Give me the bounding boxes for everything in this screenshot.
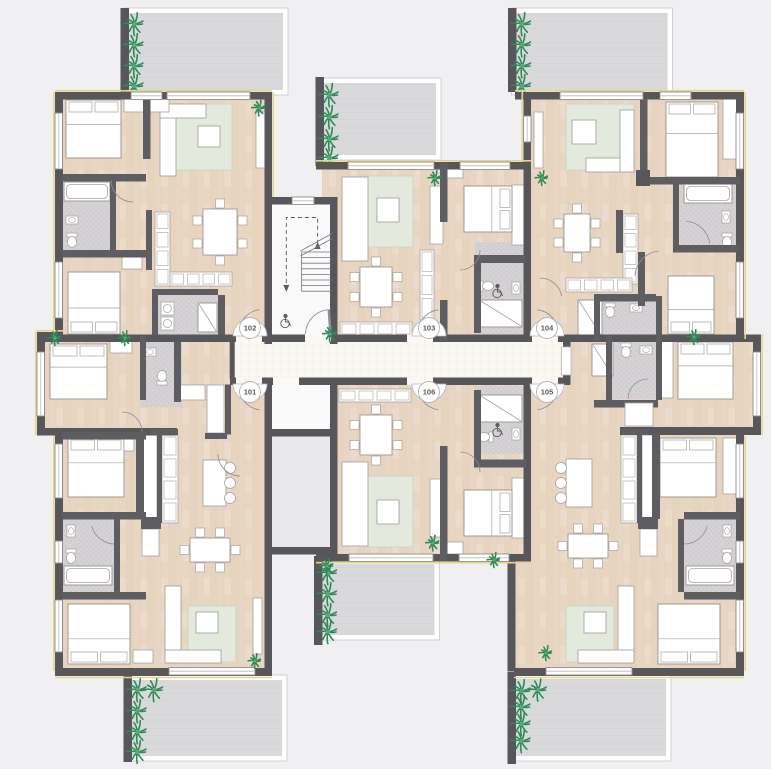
svg-text:105: 105	[541, 388, 554, 397]
svg-text:102: 102	[244, 324, 257, 333]
svg-text:106: 106	[423, 388, 436, 397]
svg-text:104: 104	[541, 324, 554, 333]
svg-text:103: 103	[423, 324, 436, 333]
svg-text:101: 101	[244, 388, 257, 397]
